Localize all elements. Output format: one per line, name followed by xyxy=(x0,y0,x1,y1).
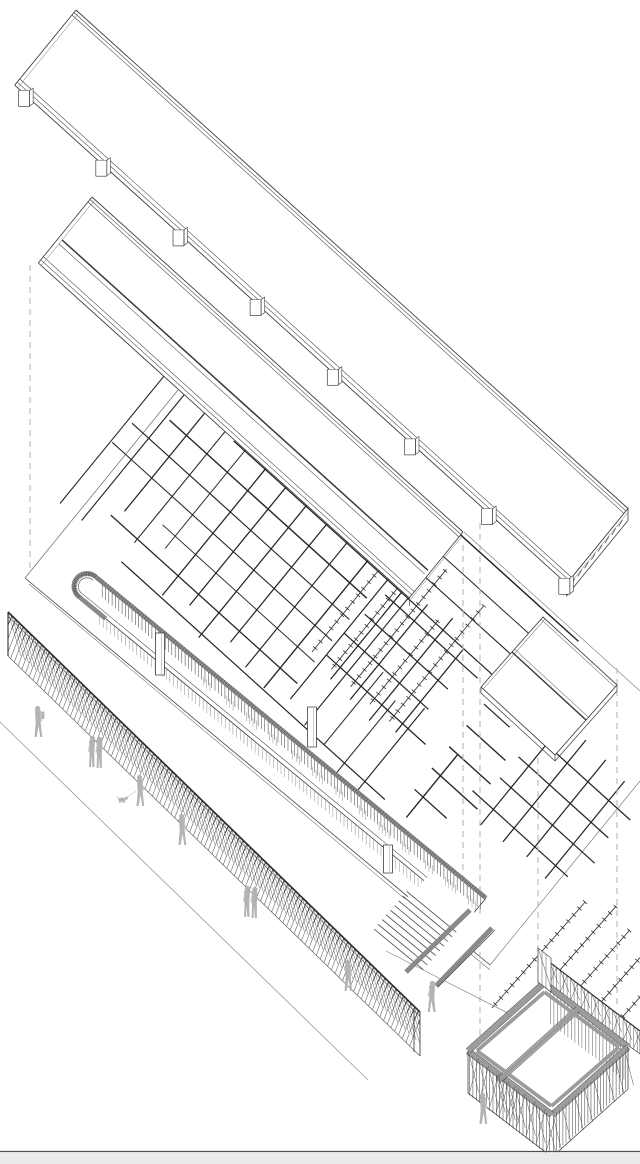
dog-figure xyxy=(117,797,128,803)
person-figure xyxy=(88,736,95,767)
person-figure xyxy=(251,887,258,918)
person-figure xyxy=(243,886,250,917)
screen-fence xyxy=(0,612,543,1080)
drawing-canvas xyxy=(0,0,640,1164)
person-figure xyxy=(428,981,436,1012)
pergola-walkway xyxy=(73,572,487,921)
pavilion xyxy=(466,948,640,1157)
small-grid-plate xyxy=(327,591,478,745)
ground-strip xyxy=(0,1152,640,1164)
person-figure xyxy=(96,737,103,768)
axonometric-drawing xyxy=(0,0,640,1164)
person-figure xyxy=(179,814,187,845)
person-figure xyxy=(35,706,45,737)
small-canopy xyxy=(481,617,617,761)
